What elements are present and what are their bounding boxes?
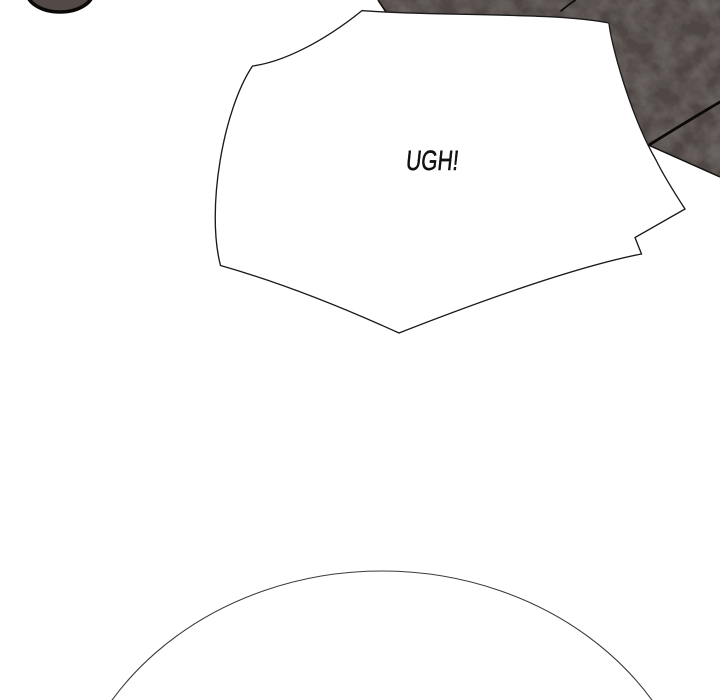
svg-text:UGH!: UGH! xyxy=(405,146,461,176)
